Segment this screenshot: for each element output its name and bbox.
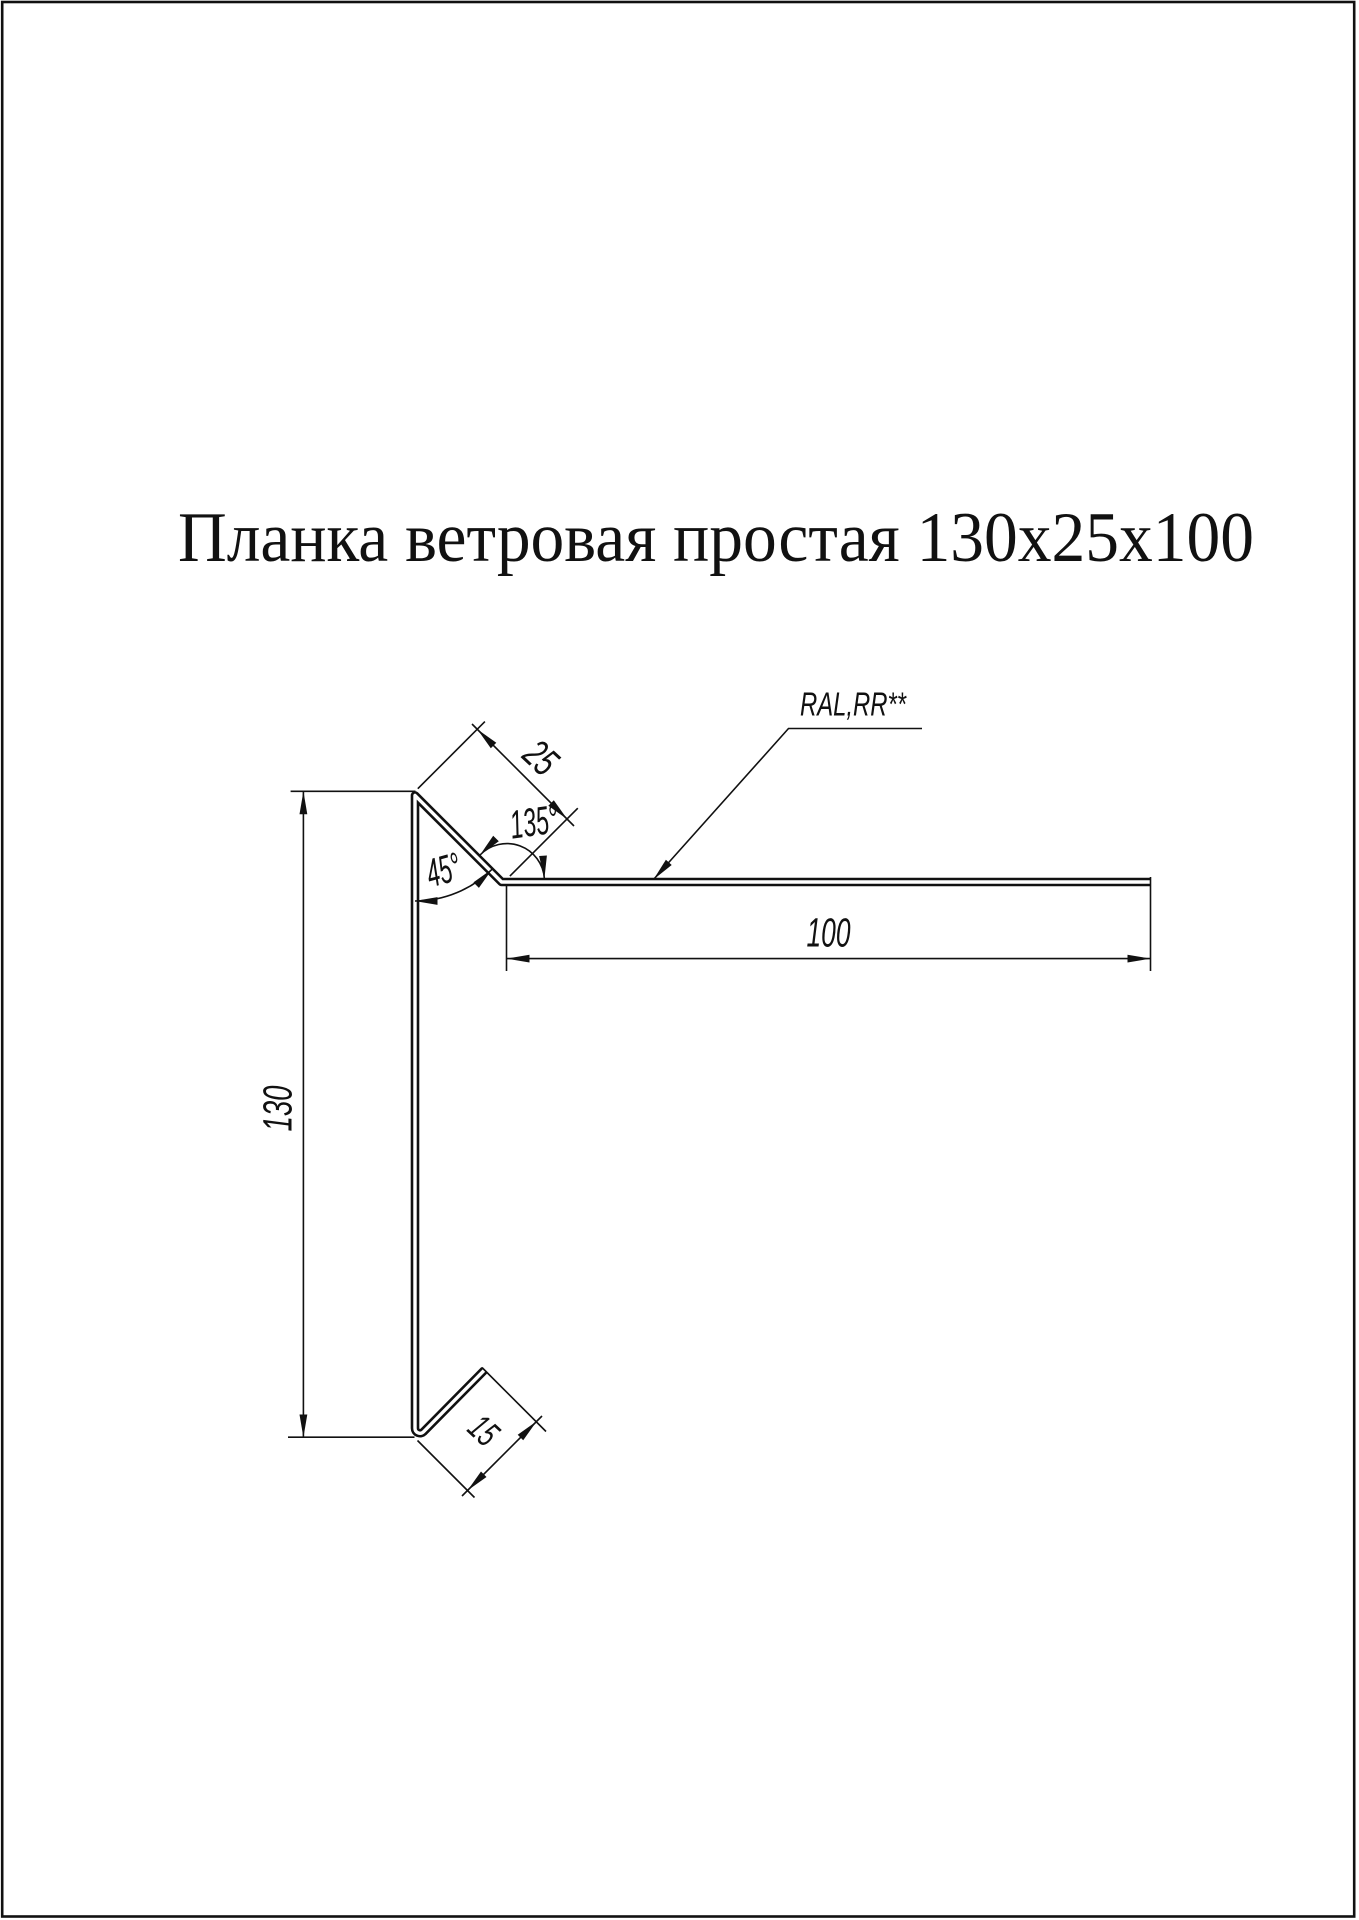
svg-text:135°: 135° bbox=[507, 797, 561, 847]
svg-text:130: 130 bbox=[255, 1085, 301, 1131]
svg-text:100: 100 bbox=[807, 910, 851, 956]
svg-text:RAL,RR**: RAL,RR** bbox=[800, 686, 907, 723]
svg-text:Планка ветровая простая 130х25: Планка ветровая простая 130х25х100 bbox=[178, 499, 1254, 577]
